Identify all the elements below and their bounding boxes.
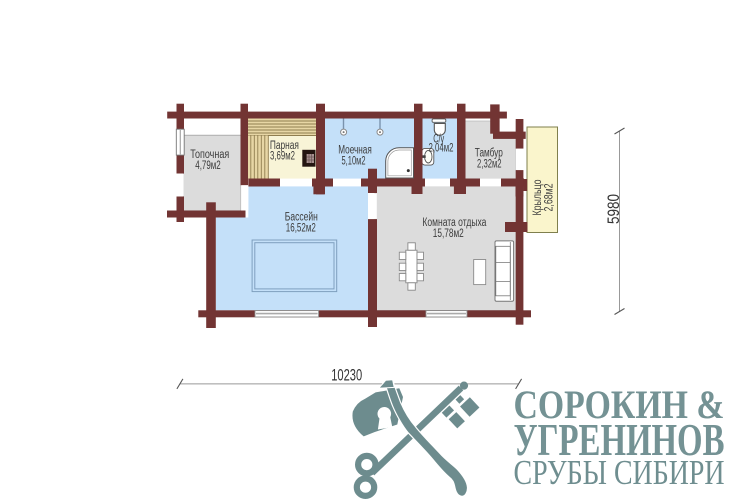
svg-text:10230: 10230: [331, 367, 362, 385]
svg-text:5,10м2: 5,10м2: [342, 155, 366, 167]
svg-text:Топочная: Топочная: [190, 149, 229, 161]
svg-text:Бассейн: Бассейн: [285, 211, 318, 223]
svg-text:2,32м2: 2,32м2: [477, 158, 502, 170]
svg-text:СРУБЫ СИБИРИ: СРУБЫ СИБИРИ: [514, 453, 725, 492]
svg-text:15,78м2: 15,78м2: [433, 228, 464, 240]
svg-text:2,04м2: 2,04м2: [429, 143, 454, 155]
svg-text:5980: 5980: [605, 194, 623, 224]
svg-text:16,52м2: 16,52м2: [286, 223, 316, 235]
svg-text:Крыльцо: Крыльцо: [532, 180, 544, 216]
svg-text:4,79м2: 4,79м2: [195, 160, 221, 172]
svg-text:2,68м2: 2,68м2: [544, 184, 556, 212]
svg-text:3,69м2: 3,69м2: [270, 151, 295, 163]
svg-text:Комната отдыха: Комната отдыха: [422, 217, 486, 229]
